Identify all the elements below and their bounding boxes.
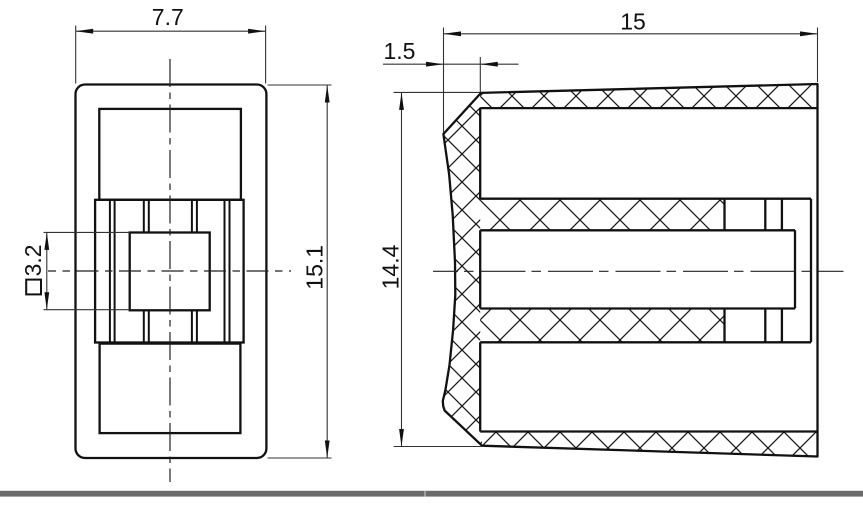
svg-text:15.1: 15.1 [301,245,327,290]
svg-text:7.7: 7.7 [152,4,184,30]
svg-text:14.4: 14.4 [377,244,403,289]
svg-text:15: 15 [620,9,646,35]
svg-text:3.2: 3.2 [20,244,46,276]
svg-text:1.5: 1.5 [384,38,416,64]
